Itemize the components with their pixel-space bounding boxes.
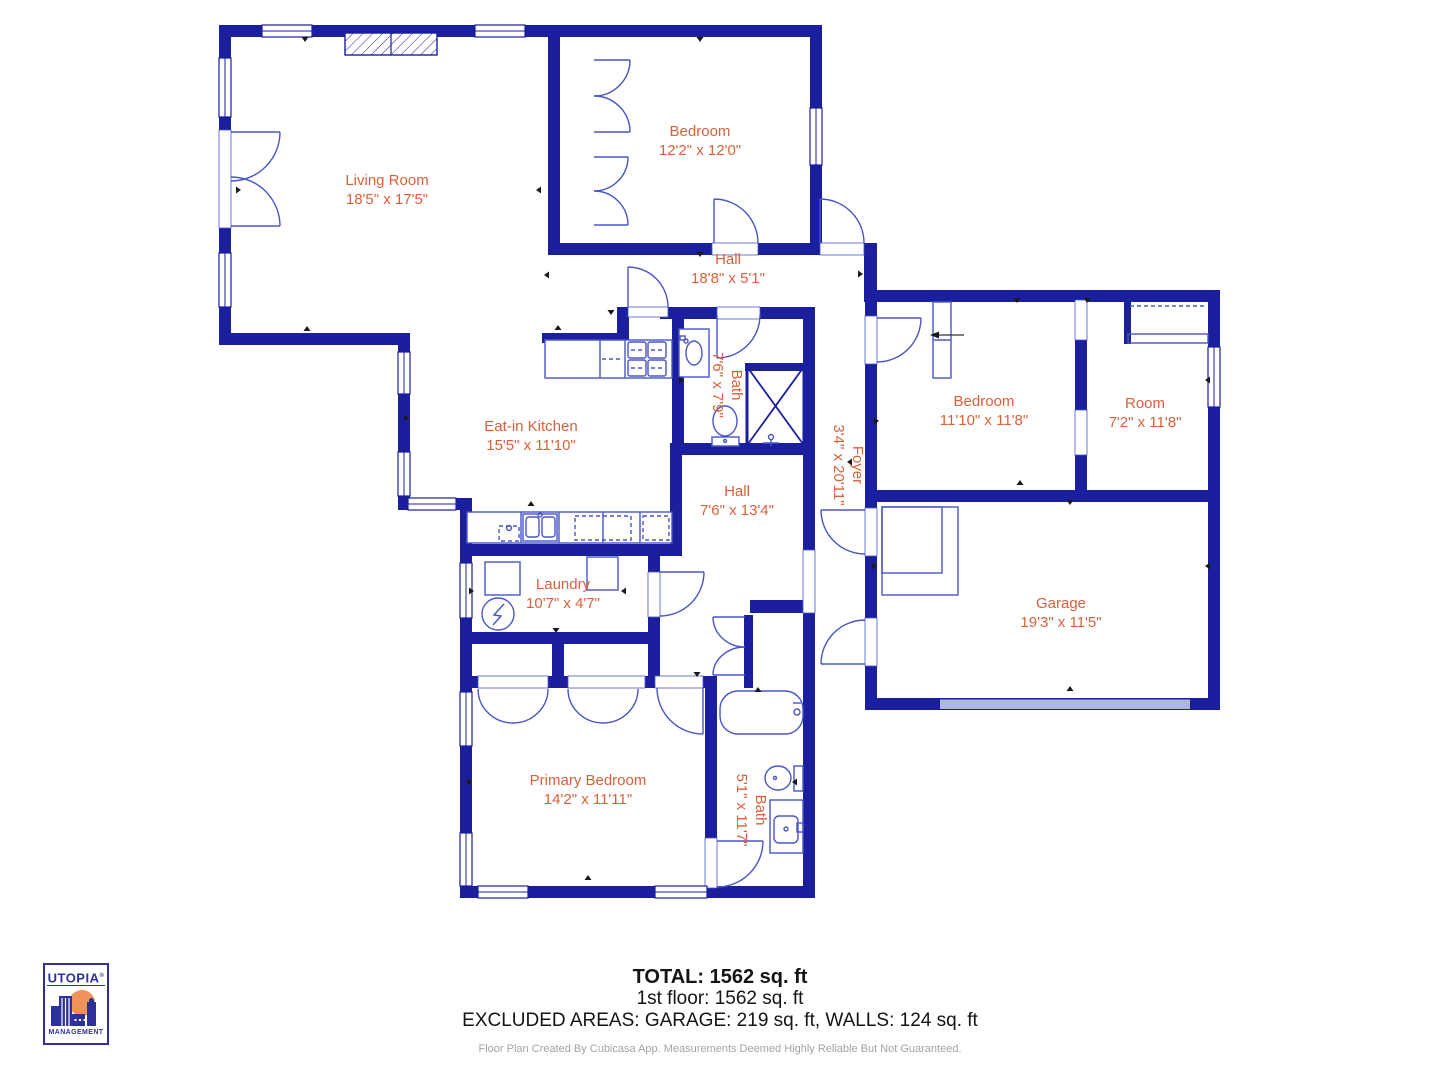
window — [810, 108, 822, 165]
room-label-foyer: Foyer 3'4" x 20'11" — [829, 424, 867, 505]
door-arc-icon — [660, 572, 704, 616]
room-label-bedroom-right: Bedroom 11'10" x 11'8" — [940, 392, 1028, 430]
shower-icon — [747, 367, 804, 446]
room-label-garage: Garage 19'3" x 11'5" — [1020, 594, 1101, 632]
window — [219, 58, 231, 117]
hall-closet-doors-icon — [713, 617, 745, 675]
room-label-room: Room 7'2" x 11'8" — [1109, 394, 1182, 432]
room-label-hall-upper: Hall 18'8" x 5'1" — [691, 250, 765, 288]
door-arc-icon — [821, 620, 865, 664]
bathroom-sink-icon — [679, 329, 709, 377]
fireplace-icon — [345, 33, 437, 55]
room-label-bedroom-top: Bedroom 12'2" x 12'0" — [659, 122, 741, 160]
front-door-icon — [820, 199, 864, 243]
room-label-hall-lower: Hall 7'6" x 13'4" — [700, 482, 774, 520]
disclaimer-text: Floor Plan Created By Cubicasa App. Meas… — [0, 1043, 1440, 1055]
garage-door — [940, 699, 1190, 709]
closet-doors-icon — [594, 60, 630, 225]
toilet-icon — [765, 766, 803, 791]
kitchen-counter-bottom — [467, 512, 672, 543]
bathtub-icon — [720, 691, 803, 734]
door-arc-icon — [657, 688, 703, 734]
window — [475, 25, 525, 37]
window — [398, 352, 410, 394]
utopia-logo: UTOPIA® MANAGEMENT — [43, 963, 109, 1045]
window — [460, 692, 472, 746]
area-summary: TOTAL: 1562 sq. ft 1st floor: 1562 sq. f… — [0, 966, 1440, 1055]
door-arc-icon — [628, 267, 668, 307]
door-arc-icon — [877, 318, 921, 362]
entry-steps-icon — [930, 302, 964, 378]
excluded-areas-text: EXCLUDED AREAS: GARAGE: 219 sq. ft, WALL… — [0, 1010, 1440, 1032]
logo-brand-text: UTOPIA® — [47, 970, 106, 986]
window — [219, 253, 231, 307]
closet-shelf-icon — [1128, 306, 1208, 343]
total-area-text: TOTAL: 1562 sq. ft — [0, 966, 1440, 988]
wall-markers — [236, 37, 1210, 880]
door-arc-icon — [717, 841, 763, 887]
door-arc-icon — [714, 199, 758, 243]
floor-area-text: 1st floor: 1562 sq. ft — [0, 988, 1440, 1010]
window — [460, 833, 472, 886]
water-heater-icon — [482, 598, 514, 630]
window — [478, 886, 528, 898]
floorplan-page: Living Room 18'5" x 17'5" Bedroom 12'2" … — [0, 0, 1440, 1080]
room-label-living-room: Living Room 18'5" x 17'5" — [345, 171, 428, 209]
logo-subtitle-text: MANAGEMENT — [45, 1029, 107, 1036]
kitchen-counter-top — [545, 340, 672, 378]
window — [655, 886, 707, 898]
window — [408, 498, 456, 510]
french-doors-icon — [231, 132, 280, 226]
room-label-laundry: Laundry 10'7" x 4'7" — [526, 575, 600, 613]
window — [262, 25, 312, 37]
room-label-bath-bottom: Bath 5'1" x 11'7" — [732, 774, 770, 847]
room-label-primary-bedroom: Primary Bedroom 14'2" x 11'11" — [530, 771, 647, 809]
window — [398, 452, 410, 496]
washer-icon — [485, 562, 520, 595]
floorplan-drawing — [0, 0, 1440, 1080]
room-label-bath-middle: Bath 7'6" x 7'9" — [708, 352, 746, 418]
bifold-doors-icon — [478, 689, 638, 723]
room-label-eat-in-kitchen: Eat-in Kitchen 15'5" x 11'10" — [484, 417, 577, 455]
garage-steps-icon — [882, 507, 958, 595]
door-arc-icon — [821, 510, 865, 554]
skyline-icon — [49, 988, 103, 1028]
vanity-sink-icon — [770, 800, 803, 853]
